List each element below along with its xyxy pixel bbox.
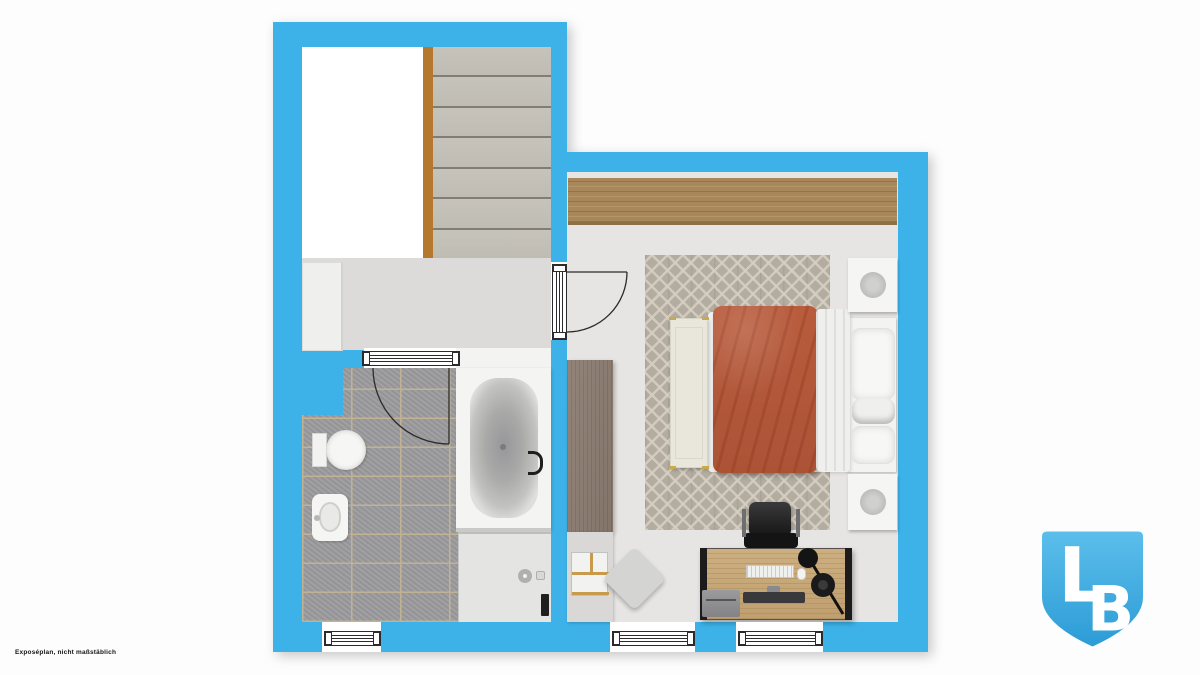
lamp-top-icon bbox=[860, 272, 886, 298]
stair-step bbox=[433, 77, 551, 107]
staircase bbox=[433, 47, 551, 258]
office-chair-seat bbox=[749, 502, 791, 537]
stair-step bbox=[433, 47, 551, 77]
bed-pillow-top bbox=[851, 328, 895, 400]
bath-partition bbox=[456, 348, 551, 368]
tall-cabinet bbox=[567, 360, 613, 532]
bed-duvet bbox=[713, 306, 818, 473]
bed-pillow-bottom bbox=[851, 426, 895, 464]
stair-void bbox=[302, 47, 423, 258]
keyboard bbox=[746, 565, 794, 578]
office-chair-back bbox=[744, 533, 798, 548]
window-glass-icon bbox=[620, 632, 687, 645]
door-hall-bath bbox=[362, 351, 460, 366]
window-bedroom-1 bbox=[612, 631, 695, 646]
stair-step bbox=[433, 199, 551, 229]
door-hall-bedroom bbox=[552, 264, 567, 340]
bed-foot-bench bbox=[670, 318, 708, 468]
window-glass-icon bbox=[746, 632, 815, 645]
bathtub-drain bbox=[500, 444, 506, 450]
door-jamb-icon bbox=[363, 352, 370, 365]
window-cap-icon bbox=[325, 632, 332, 645]
company-logo: L B bbox=[1040, 527, 1145, 652]
window-bath bbox=[324, 631, 381, 646]
office-chair-armrest-right bbox=[796, 509, 800, 537]
toilet-tank bbox=[312, 433, 327, 467]
sink-basin bbox=[319, 502, 341, 532]
window-cap-icon bbox=[373, 632, 380, 645]
wall-left bbox=[273, 22, 302, 652]
door-jamb-icon bbox=[553, 265, 566, 272]
toilet bbox=[326, 430, 366, 470]
printer bbox=[702, 590, 740, 617]
wall-bath-notch bbox=[302, 368, 343, 415]
logo-letter-b: B bbox=[1087, 573, 1134, 646]
stair-step bbox=[433, 230, 551, 258]
monitor bbox=[743, 592, 805, 603]
mouse bbox=[797, 568, 806, 580]
window-cap-icon bbox=[739, 632, 746, 645]
door-jamb-icon bbox=[553, 332, 566, 339]
hallway-cabinet bbox=[302, 262, 343, 351]
shower-handle bbox=[536, 571, 545, 580]
wall-hall-bath bbox=[302, 350, 364, 368]
desk-edge-right bbox=[845, 548, 852, 620]
side-desk-shelf bbox=[571, 552, 608, 596]
wall-right bbox=[898, 152, 928, 652]
window-cap-icon bbox=[687, 632, 694, 645]
door-leaf-icon bbox=[370, 352, 452, 365]
lamp-bottom-icon bbox=[860, 489, 886, 515]
disclaimer-text: Exposéplan, nicht maßstäblich bbox=[15, 649, 116, 656]
sink-faucet-icon bbox=[314, 515, 320, 521]
window-bedroom-2 bbox=[738, 631, 823, 646]
shower-drain bbox=[518, 569, 532, 583]
stair-step bbox=[433, 138, 551, 168]
wall-top-stair-block bbox=[273, 22, 566, 47]
door-leaf-icon bbox=[553, 272, 566, 332]
stair-stringer bbox=[423, 47, 433, 258]
office-chair-armrest-left bbox=[742, 509, 746, 537]
shower-fixture-icon bbox=[541, 594, 549, 616]
door-jamb-icon bbox=[452, 352, 459, 365]
bed-folded-sheet bbox=[816, 309, 850, 471]
window-glass-icon bbox=[332, 632, 373, 645]
window-cap-icon bbox=[815, 632, 822, 645]
floor-plan bbox=[0, 0, 1200, 675]
window-cap-icon bbox=[613, 632, 620, 645]
stair-step bbox=[433, 108, 551, 138]
bedroom-wardrobe bbox=[568, 178, 897, 225]
stair-step bbox=[433, 169, 551, 199]
bed-pillow-roll bbox=[852, 398, 895, 424]
